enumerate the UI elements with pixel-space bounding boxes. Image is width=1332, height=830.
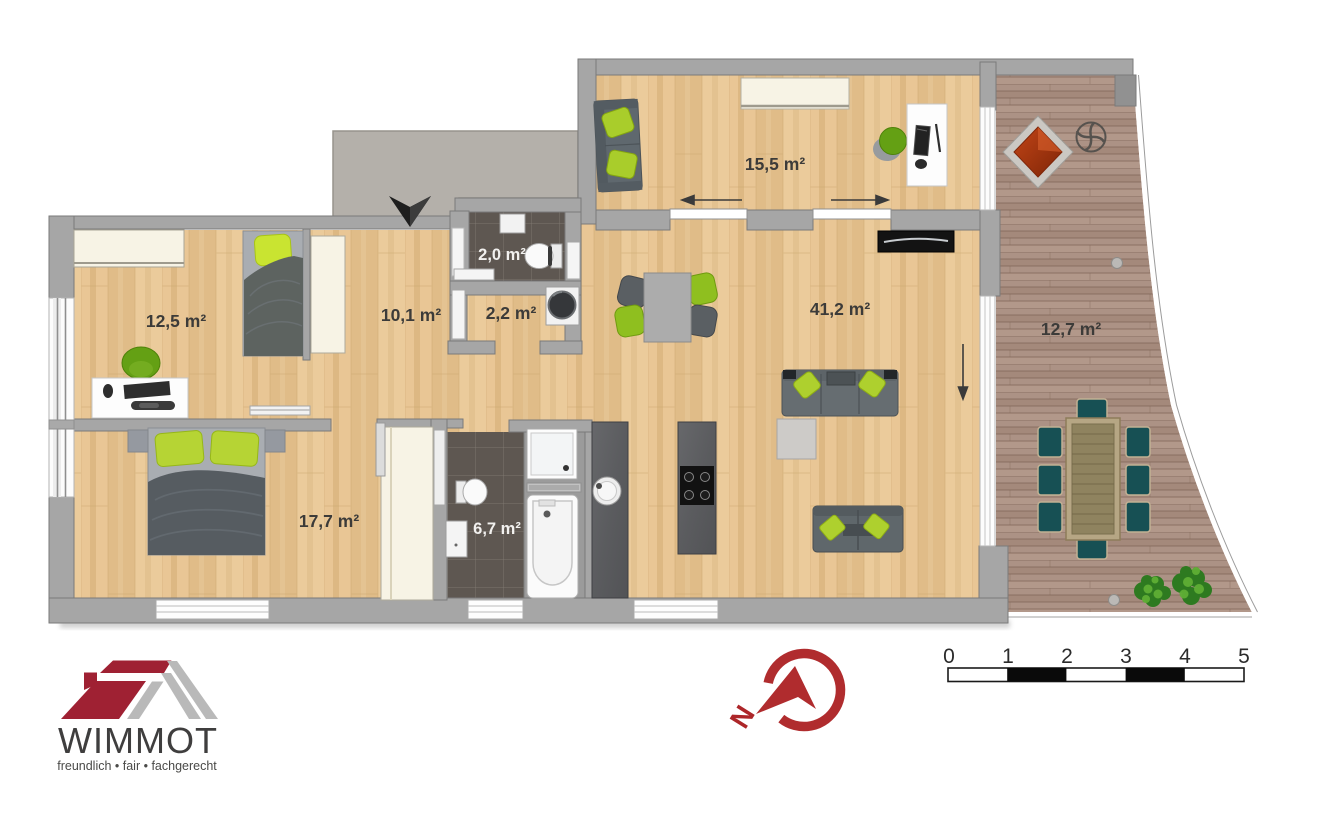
svg-text:12,5 m²: 12,5 m² xyxy=(146,311,206,331)
svg-text:0: 0 xyxy=(943,645,955,668)
svg-text:5: 5 xyxy=(1238,645,1250,668)
svg-text:2: 2 xyxy=(1061,645,1073,668)
svg-text:1: 1 xyxy=(1002,645,1014,668)
svg-text:41,2 m²: 41,2 m² xyxy=(810,299,870,319)
svg-text:15,5 m²: 15,5 m² xyxy=(745,154,805,174)
svg-text:2,0 m²: 2,0 m² xyxy=(478,246,526,264)
svg-text:WIMMOT: WIMMOT xyxy=(58,720,218,761)
svg-text:3: 3 xyxy=(1120,645,1132,668)
svg-text:17,7 m²: 17,7 m² xyxy=(299,511,359,531)
svg-text:12,7 m²: 12,7 m² xyxy=(1041,319,1101,339)
svg-text:10,1 m²: 10,1 m² xyxy=(381,305,441,325)
svg-text:freundlich • fair • fachgerech: freundlich • fair • fachgerecht xyxy=(57,759,217,773)
svg-text:2,2 m²: 2,2 m² xyxy=(486,303,537,323)
svg-text:6,7 m²: 6,7 m² xyxy=(473,520,521,538)
svg-text:4: 4 xyxy=(1179,645,1191,668)
